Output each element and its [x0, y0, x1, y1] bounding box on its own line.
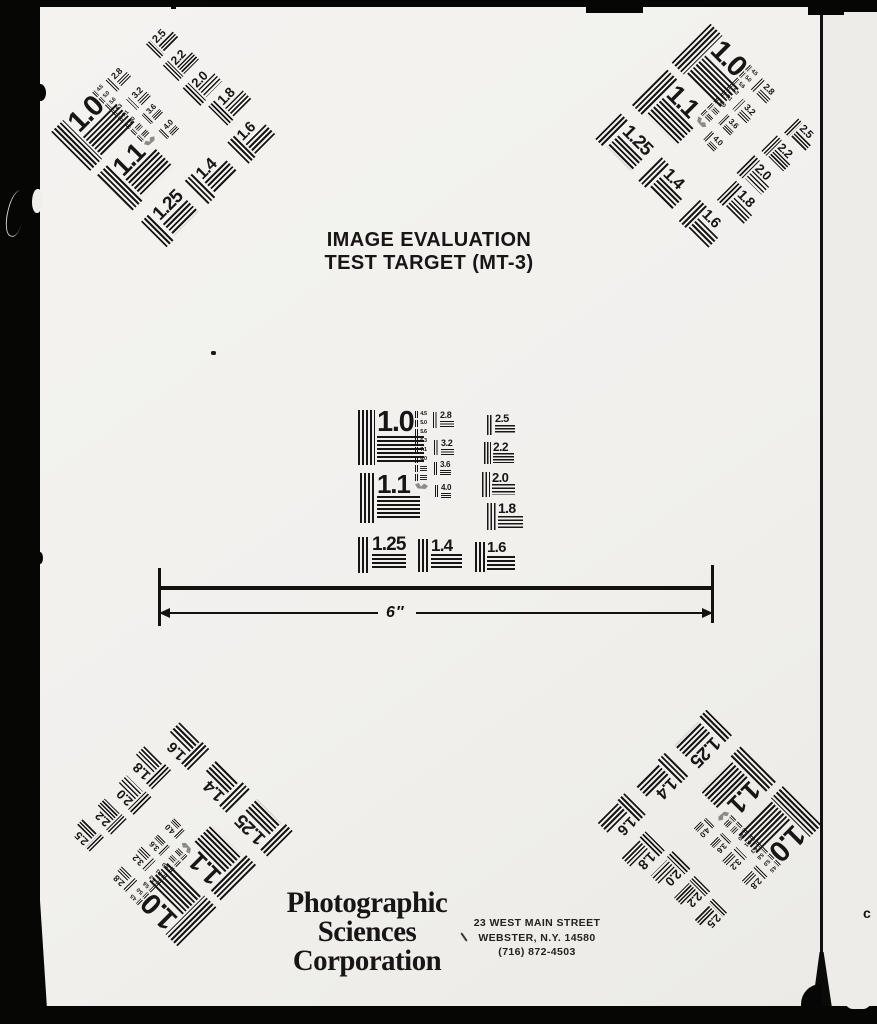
res-element-1-8: 1.8: [487, 503, 523, 530]
res-element-4-0: 4.0: [694, 817, 714, 837]
vertical-bars-icon: [434, 462, 438, 475]
illegible-mark: [420, 466, 427, 471]
res-element-3-6: 3.6: [718, 114, 740, 136]
micro-res-row: 6.3: [415, 438, 428, 445]
company-name: Photographic Sciences Corporation: [287, 888, 448, 975]
res-label: 1.6: [487, 542, 506, 555]
ruler-label: 6″: [386, 604, 405, 622]
vertical-bars-icon: [434, 440, 439, 455]
address-line-3: (716) 872-4503: [474, 945, 601, 960]
page-edge-letter: c: [863, 905, 871, 921]
micro-res-row: 5.6: [415, 429, 428, 436]
horizontal-bars-icon: [377, 496, 420, 520]
vertical-bars-icon: [360, 473, 375, 523]
res-element-2-5: 2.5: [487, 415, 515, 435]
micro-res-label: 7.1: [420, 447, 426, 453]
res-label: 1.4: [431, 539, 452, 553]
res-label: 1.8: [498, 503, 516, 515]
scanned-test-target-page: IMAGE EVALUATION TEST TARGET (MT-3) 1.0 …: [0, 0, 877, 1024]
micro-res-row: 4.5: [415, 411, 428, 418]
horizontal-bars-icon: [440, 470, 451, 476]
company-line-3: Corporation: [287, 946, 448, 975]
res-label: 4.0: [441, 485, 451, 492]
vertical-bars-icon: [482, 472, 490, 497]
ink-dot-speck: [211, 351, 216, 355]
film-border-top: [0, 0, 877, 7]
company-line-2: Sciences: [287, 917, 448, 946]
res-element-3-2: 3.2: [434, 440, 454, 456]
page-edge-line: [820, 8, 823, 956]
paper-corner-tab: [845, 999, 871, 1009]
res-element-1-1: 1.1: [360, 473, 420, 523]
ruler-arrow-line-right: [416, 612, 707, 614]
vertical-bars-icon: [487, 503, 496, 530]
company-address: 23 WEST MAIN STREET WEBSTER, N.Y. 14580 …: [474, 916, 601, 960]
res-element-2-2: 2.2: [484, 442, 514, 464]
micro-res-label: 5.0: [420, 420, 426, 426]
test-pattern-center: 1.0 1.1 1.25 1.4 1.6 1.8 2.0 2.2 2.5 2.8…: [355, 403, 520, 573]
micro-res-row-illegible: [415, 474, 428, 481]
micro-res-row-illegible: [415, 465, 428, 472]
film-notch: [586, 0, 643, 13]
micro-bars-icon: [415, 447, 419, 454]
res-element-3-6: 3.6: [149, 834, 171, 856]
res-label: 1.25: [372, 537, 406, 553]
company-line-1: Photographic: [287, 888, 448, 917]
micro-res-label: 8.0: [717, 100, 726, 109]
vertical-bars-icon: [433, 412, 438, 428]
horizontal-bars-icon: [495, 425, 515, 434]
illegible-mark: [705, 113, 713, 121]
res-label: 2.0: [492, 472, 508, 483]
film-border-left: [0, 0, 40, 1024]
res-element-4-0: 4.0: [165, 818, 185, 838]
res-label: 3.2: [441, 440, 452, 448]
micro-res-label: 5.6: [420, 429, 426, 435]
arrowhead-right-icon: [702, 608, 713, 618]
res-element-2-8: 2.8: [111, 866, 137, 892]
horizontal-bars-icon: [440, 421, 454, 428]
vertical-bars-icon: [435, 485, 439, 497]
micro-res-label: 8.0: [420, 456, 426, 462]
title-line-2: TEST TARGET (MT-3): [324, 252, 533, 275]
vertical-bars-icon: [487, 415, 493, 435]
micro-res-label: 5.6: [736, 81, 745, 90]
address-line-1: 23 WEST MAIN STREET: [474, 916, 601, 931]
micro-bars-icon: [415, 438, 419, 445]
micro-resolution-column: 4.5 5.0 5.6 6.3 7.1 8.0: [415, 411, 428, 489]
horizontal-bars-icon: [498, 516, 523, 528]
film-speck: [171, 2, 176, 9]
res-element-4-0: 4.0: [703, 131, 723, 151]
vertical-bars-icon: [484, 442, 491, 464]
six-inch-ruler: 6″: [158, 565, 714, 629]
res-element-4-0: 4.0: [159, 119, 179, 139]
horizontal-bars-icon: [441, 449, 454, 456]
illegible-mark: [420, 475, 427, 480]
res-element-4-0: 4.0: [435, 485, 451, 498]
res-element-3-6: 3.6: [142, 103, 164, 125]
film-edge-blob: [35, 84, 46, 101]
film-edge-bump: [37, 552, 43, 564]
adjacent-page-strip: [822, 8, 877, 1004]
micro-bars-icon: [415, 429, 419, 436]
micro-bars-icon: [415, 465, 419, 472]
ink-smudge: [415, 483, 428, 489]
micro-res-label: 6.3: [420, 438, 426, 444]
res-element-3-6: 3.6: [434, 462, 451, 476]
title-line-1: IMAGE EVALUATION: [324, 229, 533, 252]
micro-res-label: 4.5: [420, 411, 426, 417]
micro-bars-icon: [415, 474, 419, 481]
res-label: 1.1: [377, 473, 410, 495]
micro-bars-icon: [415, 411, 419, 418]
res-element-2-0: 2.0: [482, 472, 515, 497]
res-element-2-8: 2.8: [751, 78, 777, 104]
res-element-2-8: 2.8: [741, 865, 767, 891]
horizontal-bars-icon: [493, 453, 514, 463]
ruler-arrow-line-left: [165, 612, 378, 614]
ruler-main-line: [161, 586, 711, 590]
illegible-mark: [711, 107, 719, 115]
micro-bars-icon: [415, 420, 419, 427]
page-title: IMAGE EVALUATION TEST TARGET (MT-3): [324, 229, 533, 275]
micro-res-row: 8.0: [415, 456, 428, 463]
micro-bars-icon: [415, 456, 419, 463]
film-notch: [826, 0, 877, 12]
res-element-2-8: 2.8: [106, 66, 132, 92]
res-element-3-6: 3.6: [710, 832, 732, 854]
res-label: 3.6: [440, 462, 450, 469]
illegible-mark: [141, 129, 149, 137]
horizontal-bars-icon: [492, 484, 515, 495]
res-label: 2.8: [440, 412, 451, 420]
horizontal-bars-icon: [441, 493, 451, 498]
micro-res-label: 5.0: [743, 75, 752, 84]
film-border-bottom: [0, 1006, 877, 1024]
res-label: 2.2: [493, 442, 508, 452]
res-element-2-8: 2.8: [433, 412, 454, 428]
vertical-bars-icon: [358, 410, 375, 465]
address-line-2: WEBSTER, N.Y. 14580: [474, 931, 601, 946]
micro-res-row: 7.1: [415, 447, 428, 454]
res-label: 2.5: [495, 415, 509, 424]
resolution-test-pattern: 1.0 1.1 1.25 1.4 1.6 1.8 2.0 2.2 2.5 2.8…: [355, 403, 520, 573]
res-label: 1.0: [377, 410, 413, 435]
micro-res-label: 7.1: [724, 94, 733, 103]
micro-res-row: 5.0: [415, 420, 428, 427]
film-edge-white-notch: [32, 189, 42, 213]
micro-res-label: 6.3: [730, 88, 739, 97]
